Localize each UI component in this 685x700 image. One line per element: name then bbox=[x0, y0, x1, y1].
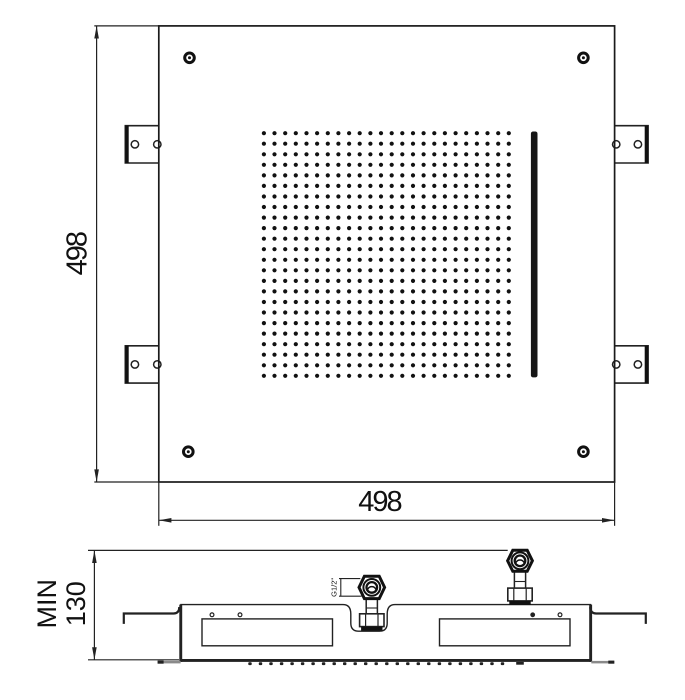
svg-text:MIN: MIN bbox=[32, 579, 62, 629]
svg-text:130: 130 bbox=[61, 581, 91, 626]
svg-text:498: 498 bbox=[62, 232, 94, 275]
svg-text:498: 498 bbox=[358, 486, 401, 518]
svg-text:G1/2": G1/2" bbox=[329, 578, 338, 597]
